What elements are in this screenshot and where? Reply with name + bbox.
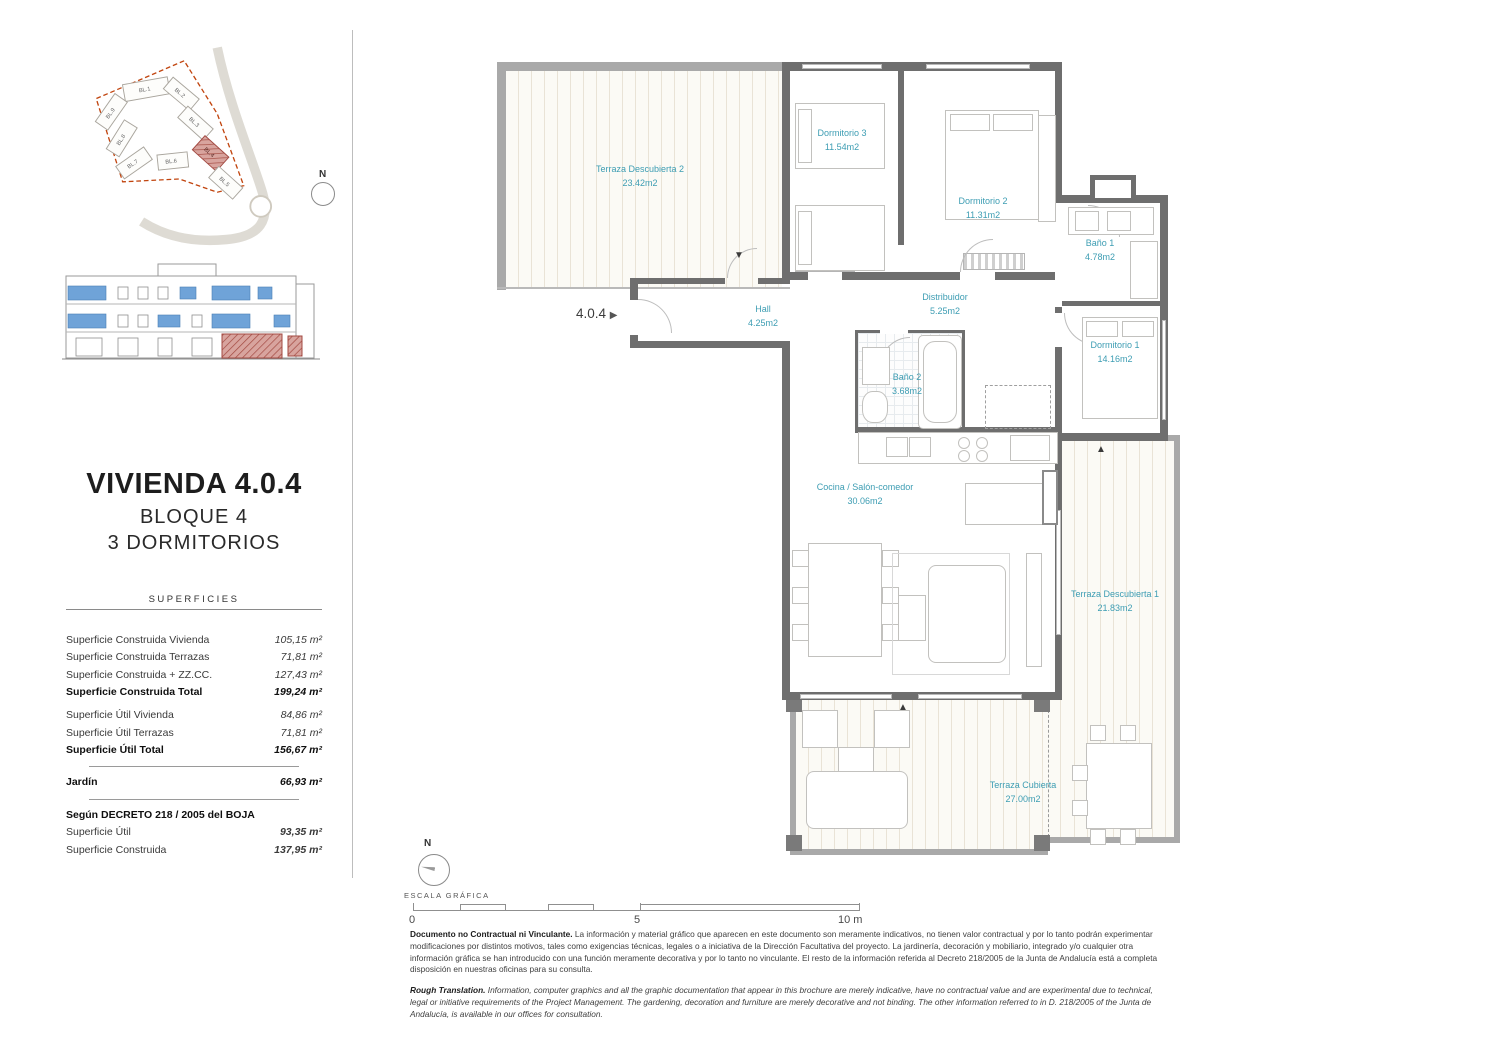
room-label-terraza-descubierta-1: Terraza Descubierta 1 21.83m2 (1065, 588, 1165, 616)
room-area: 11.54m2 (790, 141, 894, 155)
room-label-distribuidor: Distribuidor 5.25m2 (900, 291, 990, 319)
table-row: Superficie Construida137,95 m² (66, 842, 322, 859)
room-label-dormitorio-3: Dormitorio 3 11.54m2 (790, 127, 894, 155)
room-area: 5.25m2 (900, 305, 990, 319)
room-area: 4.25m2 (728, 317, 798, 331)
sink (1075, 211, 1099, 231)
entrance-arrow-icon: ▶ (610, 310, 618, 321)
areas-table: SUPERFICIES Superficie Construida Vivien… (66, 594, 322, 859)
room-name: Baño 2 (862, 371, 952, 385)
outdoor-sofa (806, 771, 908, 829)
wall (1168, 435, 1180, 441)
wall (995, 272, 1055, 280)
room-name: Distribuidor (900, 291, 990, 305)
sofa (928, 565, 1006, 663)
room-area: 27.00m2 (958, 793, 1088, 807)
table-divider (89, 799, 299, 800)
chair (792, 624, 809, 641)
floor-plan: ▼ ▲ ▲ 4.0.4 ▶ Terraza Descubierta 2 23.4… (490, 55, 1200, 865)
scale-label: ESCALA GRÁFICA (404, 891, 490, 900)
room-name: Dormitorio 1 (1070, 339, 1160, 353)
kitchen-sink (886, 437, 908, 457)
outdoor-dining-table (1086, 743, 1152, 829)
wall (1062, 301, 1160, 306)
sliding-door-glass (918, 694, 1022, 699)
window (802, 64, 882, 69)
armchair (802, 710, 838, 748)
disclaimer-block: Documento no Contractual ni Vinculante. … (410, 929, 1168, 1029)
chair (1090, 725, 1106, 741)
pillar (786, 835, 802, 851)
chair (1120, 829, 1136, 845)
room-area: 11.31m2 (918, 209, 1048, 223)
wall (782, 341, 790, 700)
room-area: 3.68m2 (862, 385, 952, 399)
table-divider (89, 766, 299, 767)
wardrobe-dashed (985, 385, 1051, 429)
arrow-up-icon: ▲ (1096, 445, 1106, 455)
terrace-1-floor-ext (1048, 700, 1062, 837)
scale-bar-segment (460, 904, 506, 911)
table-row-jardin: Jardín66,93 m² (66, 774, 322, 791)
scale-tick-label: 0 (409, 914, 415, 926)
room-name: Dormitorio 2 (918, 195, 1048, 209)
wall (497, 62, 782, 71)
arrow-down-icon: ▼ (734, 251, 744, 261)
wall (790, 272, 808, 280)
table-row: Superficie Construida Terrazas71,81 m² (66, 649, 322, 666)
tall-cabinet (1042, 470, 1058, 525)
pillar (1034, 835, 1050, 851)
scale-bar-tick (413, 903, 414, 911)
stove-burner (976, 437, 988, 449)
chair (1120, 725, 1136, 741)
disclaimer-english: Rough Translation. Information, computer… (410, 985, 1168, 1020)
wall (790, 700, 796, 855)
wall (1055, 433, 1168, 441)
window (1162, 320, 1166, 420)
scale-bar-segment (548, 904, 594, 911)
pillow (1086, 321, 1118, 337)
door-arc (960, 239, 993, 272)
chair (792, 587, 809, 604)
room-area: 21.83m2 (1065, 602, 1165, 616)
wall (1048, 837, 1180, 843)
room-name: Dormitorio 3 (790, 127, 894, 141)
stove-burner (958, 450, 970, 462)
room-name: Terraza Cubierta (958, 779, 1088, 793)
sink (1107, 211, 1131, 231)
room-label-bano-1: Baño 1 4.78m2 (1060, 237, 1140, 265)
shaft (1090, 175, 1136, 203)
window (926, 64, 1030, 69)
fridge (1010, 435, 1050, 461)
table-row-total: Superficie Útil Total156,67 m² (66, 742, 322, 759)
vertical-divider (352, 30, 353, 878)
elevation-highlighted-unit (222, 334, 282, 358)
wall (630, 278, 725, 284)
unit-entrance-label: 4.0.4 ▶ (576, 306, 654, 321)
room-label-terraza-cubierta: Terraza Cubierta 27.00m2 (958, 779, 1088, 807)
pillow (950, 114, 990, 131)
room-label-terraza-descubierta-2: Terraza Descubierta 2 23.42m2 (530, 163, 750, 191)
pillow (798, 211, 812, 265)
room-name: Terraza Descubierta 1 (1065, 588, 1165, 602)
table-row-total: Superficie Construida Total199,24 m² (66, 684, 322, 701)
decree-heading: Según DECRETO 218 / 2005 del BOJA (66, 807, 322, 825)
building-elevation (62, 262, 322, 364)
wall (842, 272, 960, 280)
roundabout (250, 196, 271, 217)
room-label-hall: Hall 4.25m2 (728, 303, 798, 331)
page-subtitle-bedrooms: 3 DORMITORIOS (64, 532, 324, 555)
scale-tick-label: 10 m (838, 914, 862, 926)
room-name: Hall (728, 303, 798, 317)
room-label-dormitorio-2: Dormitorio 2 11.31m2 (918, 195, 1048, 223)
block-label: BL.6 (165, 158, 177, 165)
wall (630, 341, 790, 348)
door-opening (880, 329, 908, 334)
elevation-highlighted-unit-2 (288, 336, 302, 356)
kitchen-island (965, 483, 1047, 525)
pillow (1122, 321, 1154, 337)
chair (792, 550, 809, 567)
wall (497, 287, 790, 289)
sliding-door-glass (800, 694, 892, 699)
room-area: 14.16m2 (1070, 353, 1160, 367)
disclaimer-spanish: Documento no Contractual ni Vinculante. … (410, 929, 1168, 976)
table-row: Superficie Útil Terrazas71,81 m² (66, 725, 322, 742)
areas-table-heading: SUPERFICIES (66, 594, 322, 610)
table-row: Superficie Útil93,35 m² (66, 824, 322, 841)
room-area: 23.42m2 (530, 177, 750, 191)
site-compass-n-label: N (319, 169, 326, 180)
page-title: VIVIENDA 4.0.4 (64, 468, 324, 501)
wall (782, 62, 790, 280)
tv-unit (1026, 553, 1042, 667)
pillow (993, 114, 1033, 131)
table-row: Superficie Útil Vivienda84,86 m² (66, 707, 322, 724)
room-area: 30.06m2 (790, 495, 940, 509)
terrace-divider-dashed (1048, 705, 1049, 837)
wall (898, 71, 904, 245)
dining-table (808, 543, 882, 657)
room-area: 4.78m2 (1060, 251, 1140, 265)
scale-compass-n-label: N (424, 838, 431, 849)
room-name: Baño 1 (1060, 237, 1140, 251)
room-name: Cocina / Salón-comedor (790, 481, 940, 495)
room-label-dormitorio-1: Dormitorio 1 14.16m2 (1070, 339, 1160, 367)
stove-burner (976, 450, 988, 462)
scale-tick-label: 5 (634, 914, 640, 926)
room-label-cocina-salon: Cocina / Salón-comedor 30.06m2 (790, 481, 940, 509)
room-label-bano-2: Baño 2 3.68m2 (862, 371, 952, 399)
wall (1055, 71, 1062, 195)
table-row: Superficie Construida + ZZ.CC.127,43 m² (66, 667, 322, 684)
arrow-up-icon: ▲ (898, 703, 908, 713)
wall (1174, 441, 1180, 843)
chair (1090, 829, 1106, 845)
stove-burner (958, 437, 970, 449)
table-row: Superficie Construida Vivienda105,15 m² (66, 632, 322, 649)
armchair (874, 710, 910, 748)
wall (790, 849, 1048, 855)
page-subtitle-block: BLOQUE 4 (64, 506, 324, 529)
sliding-door-glass (1056, 510, 1061, 635)
brochure-page: BL.1 BL.2 BL.3 BL.4 BL.5 BL.6 BL.7 BL.8 … (0, 0, 1500, 1060)
kitchen-sink (909, 437, 931, 457)
wall (630, 278, 638, 300)
site-compass-icon (311, 182, 335, 206)
wall (497, 62, 506, 290)
site-buildings: BL.1 BL.2 BL.3 BL.4 BL.5 BL.6 BL.7 BL.8 … (95, 77, 242, 199)
scale-bar-segment-line (640, 904, 860, 905)
wall (758, 278, 790, 284)
wall (1055, 307, 1062, 313)
room-name: Terraza Descubierta 2 (530, 163, 750, 177)
coffee-table (898, 595, 926, 641)
